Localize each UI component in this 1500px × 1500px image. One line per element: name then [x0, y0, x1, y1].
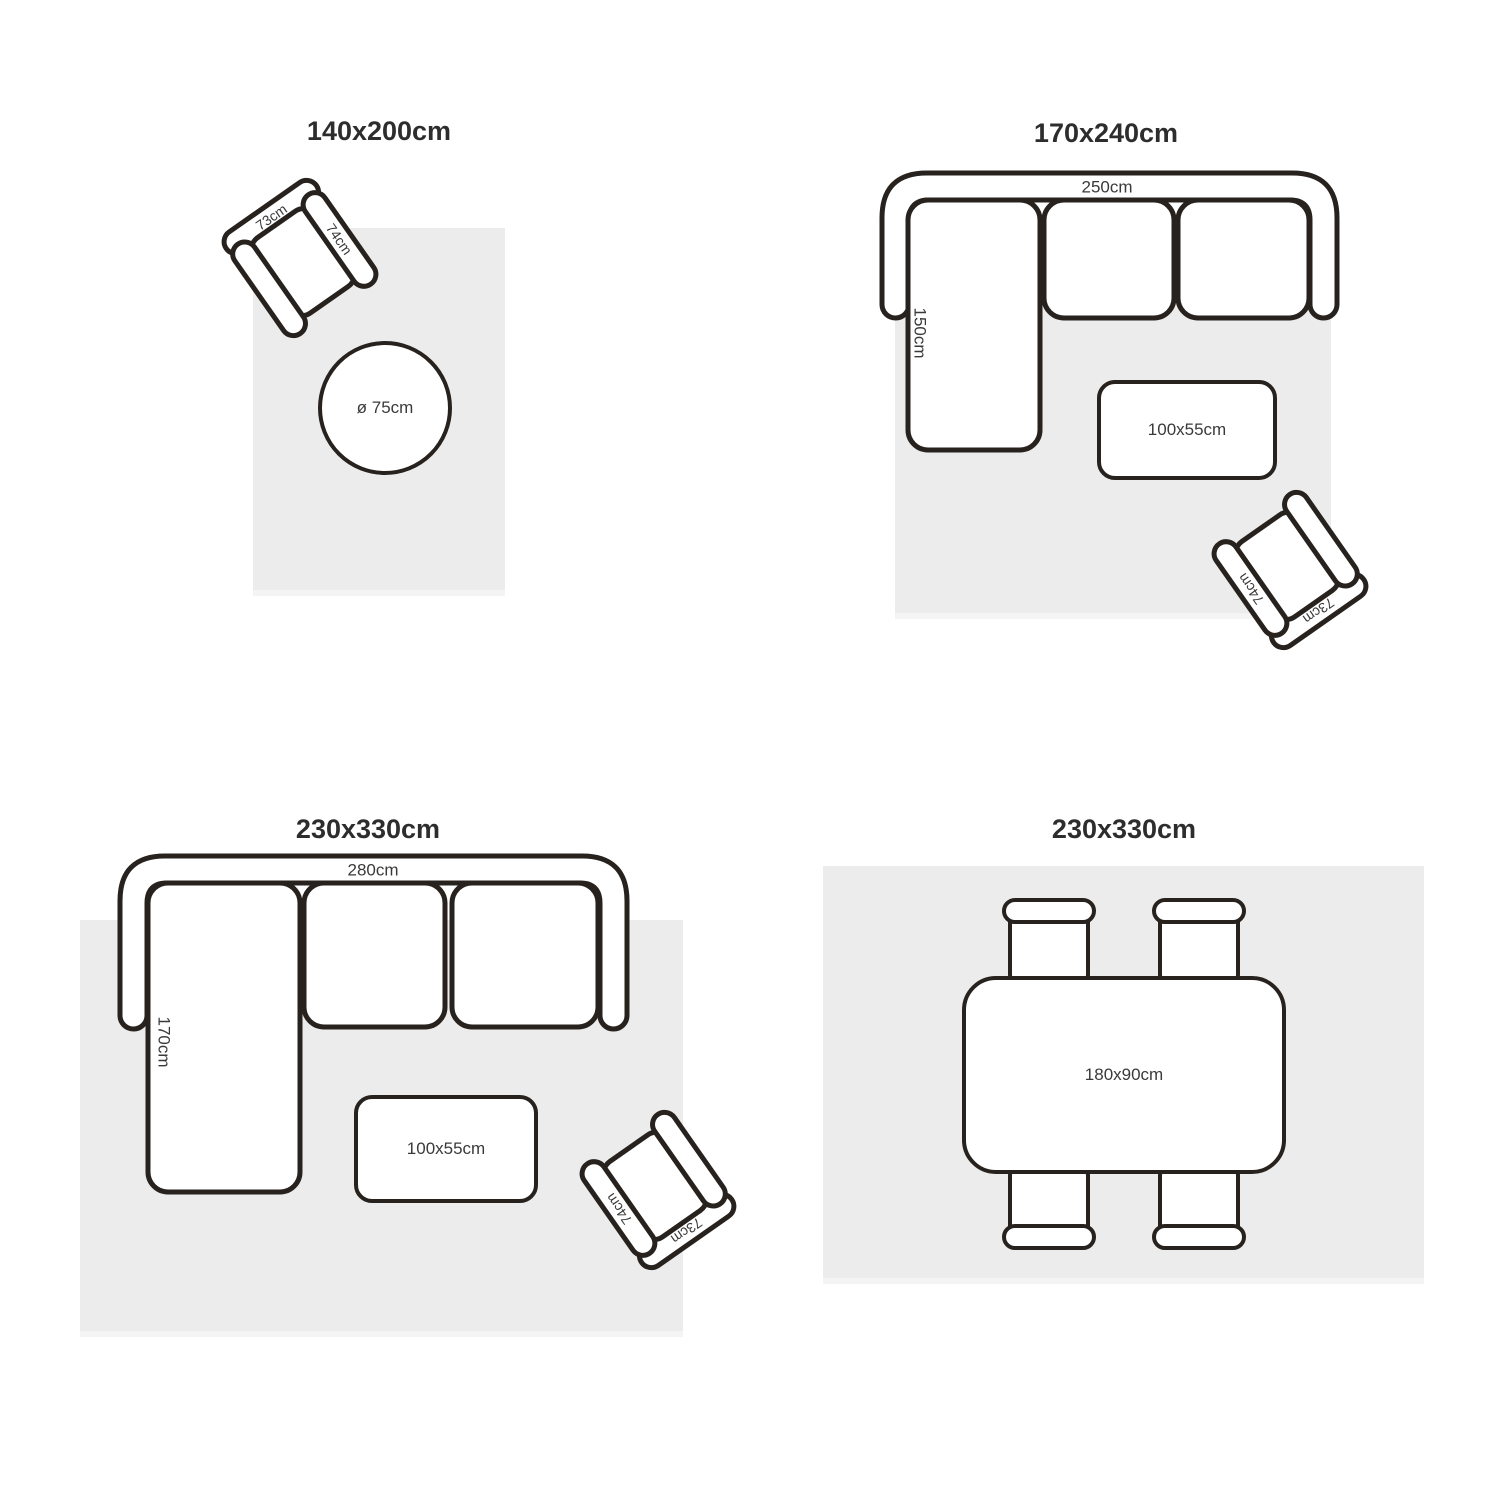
dining-chair-back	[1002, 898, 1096, 924]
sofa-width-label: 280cm	[347, 861, 398, 880]
coffee-table-label: 100x55cm	[1148, 420, 1226, 440]
coffee-table: 100x55cm	[1097, 380, 1277, 480]
dining-chair-back	[1002, 1224, 1096, 1250]
sofa-width-label: 250cm	[1081, 178, 1132, 197]
sofa-depth-label: 170cm	[155, 1016, 174, 1067]
round-rug-label: ø 75cm	[357, 398, 414, 418]
dining-chair-back	[1152, 1224, 1246, 1250]
panel-title-170x240: 170x240cm	[1034, 118, 1178, 149]
sofa-depth-label: 150cm	[911, 307, 930, 358]
coffee-table: 100x55cm	[354, 1095, 538, 1203]
dining-chair-back	[1152, 898, 1246, 924]
round-rug: ø 75cm	[318, 341, 452, 475]
panel-title-140x200: 140x200cm	[307, 116, 451, 147]
dining-table-label: 180x90cm	[1085, 1065, 1163, 1085]
panel-title-230x330-sofa: 230x330cm	[296, 814, 440, 845]
panel-title-230x330-dining: 230x330cm	[1052, 814, 1196, 845]
coffee-table-label: 100x55cm	[407, 1139, 485, 1159]
rug-size-guide: 140x200cm 73cm 74cm ø 75cm 170x240cm 250…	[0, 0, 1500, 1500]
dining-table: 180x90cm	[962, 976, 1286, 1174]
